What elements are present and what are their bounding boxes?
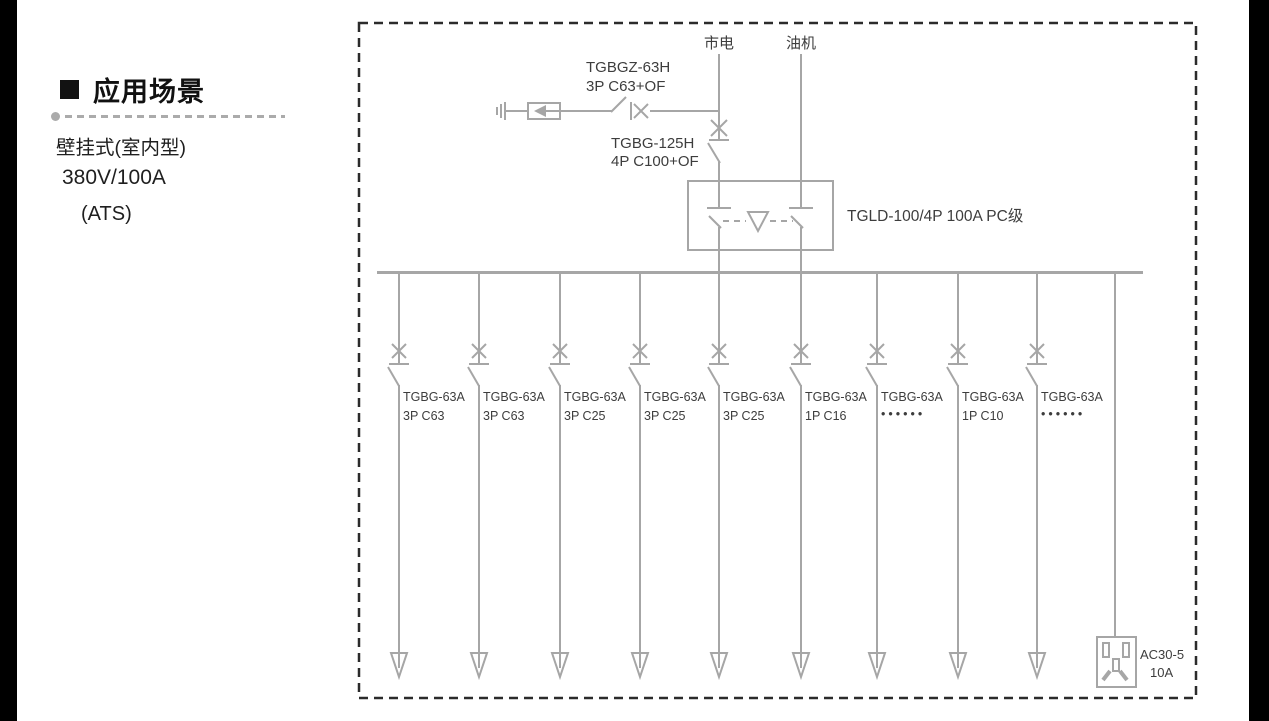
socket-rating-label: 10A	[1150, 665, 1173, 680]
branch-breaker-blade-icon	[629, 367, 640, 386]
branch-3: TGBG-63A3P C25	[549, 274, 626, 677]
branch-breaker-blade-icon	[866, 367, 877, 386]
branch-model-label: TGBG-63A	[1041, 390, 1103, 404]
branch-model-label: TGBG-63A	[881, 390, 943, 404]
spd-breaker-model-label: TGBGZ-63H	[586, 59, 670, 76]
main-breaker-spec-label: 4P C100+OF	[611, 153, 699, 170]
branch-7: TGBG-63A••••••	[866, 274, 943, 677]
branch-model-label: TGBG-63A	[962, 390, 1024, 404]
mains-label: 市电	[704, 35, 734, 52]
branch-breaker-blade-icon	[549, 367, 560, 386]
ground-icon	[497, 102, 505, 120]
branch-6: TGBG-63A1P C16	[790, 274, 867, 677]
branch-spec-label: 3P C25	[564, 409, 606, 423]
spd-breaker-x-icon	[634, 104, 648, 118]
single-line-diagram: 市电 油机 TGBGZ-63H 3P C63+OF TGBG-125H 4P C…	[0, 0, 1269, 721]
branch-breaker-blade-icon	[1026, 367, 1037, 386]
branch-model-label: TGBG-63A	[483, 390, 545, 404]
branch-breaker-blade-icon	[790, 367, 801, 386]
ats-switch	[688, 181, 833, 274]
branch-1: TGBG-63A3P C63	[388, 274, 465, 677]
spd-breaker-blade-icon	[611, 97, 626, 112]
branch-8: TGBG-63A1P C10	[947, 274, 1024, 677]
socket-branch	[1097, 273, 1136, 687]
branch-model-label: TGBG-63A	[805, 390, 867, 404]
branch-model-label: TGBG-63A	[644, 390, 706, 404]
diagram-dashed-border	[359, 23, 1196, 698]
main-breaker-model-label: TGBG-125H	[611, 135, 694, 152]
socket-icon	[1097, 637, 1136, 687]
ats-label: TGLD-100/4P 100A PC级	[847, 207, 1023, 225]
ats-left-blade-icon	[709, 216, 721, 228]
branch-spec-label: 3P C25	[723, 409, 765, 423]
spd-breaker-spec-label: 3P C63+OF	[586, 78, 665, 95]
branch-5: TGBG-63A3P C25	[708, 274, 785, 677]
branch-spec-label: 3P C25	[644, 409, 686, 423]
branch-breaker-blade-icon	[708, 367, 719, 386]
branch-spec-label: 1P C16	[805, 409, 847, 423]
branch-spec-label: ••••••	[881, 407, 925, 421]
branch-breaker-blade-icon	[947, 367, 958, 386]
branch-breaker-blade-icon	[468, 367, 479, 386]
distribution-branches: TGBG-63A3P C63TGBG-63A3P C63TGBG-63A3P C…	[388, 274, 1103, 677]
branch-spec-label: 3P C63	[403, 409, 445, 423]
spd-arrow-icon	[534, 105, 546, 117]
branch-9: TGBG-63A••••••	[1026, 274, 1103, 677]
branch-spec-label: 3P C63	[483, 409, 525, 423]
generator-label: 油机	[786, 35, 816, 52]
branch-model-label: TGBG-63A	[723, 390, 785, 404]
branch-model-label: TGBG-63A	[403, 390, 465, 404]
branch-spec-label: ••••••	[1041, 407, 1085, 421]
branch-model-label: TGBG-63A	[564, 390, 626, 404]
socket-model-label: AC30-5	[1140, 647, 1184, 662]
branch-2: TGBG-63A3P C63	[468, 274, 545, 677]
main-breaker-blade-icon	[708, 143, 720, 163]
branch-spec-label: 1P C10	[962, 409, 1004, 423]
branch-breaker-blade-icon	[388, 367, 399, 386]
spd-branch	[497, 97, 719, 120]
branch-4: TGBG-63A3P C25	[629, 274, 706, 677]
ats-interlock-triangle-icon	[748, 212, 768, 231]
mains-feed	[708, 54, 729, 181]
